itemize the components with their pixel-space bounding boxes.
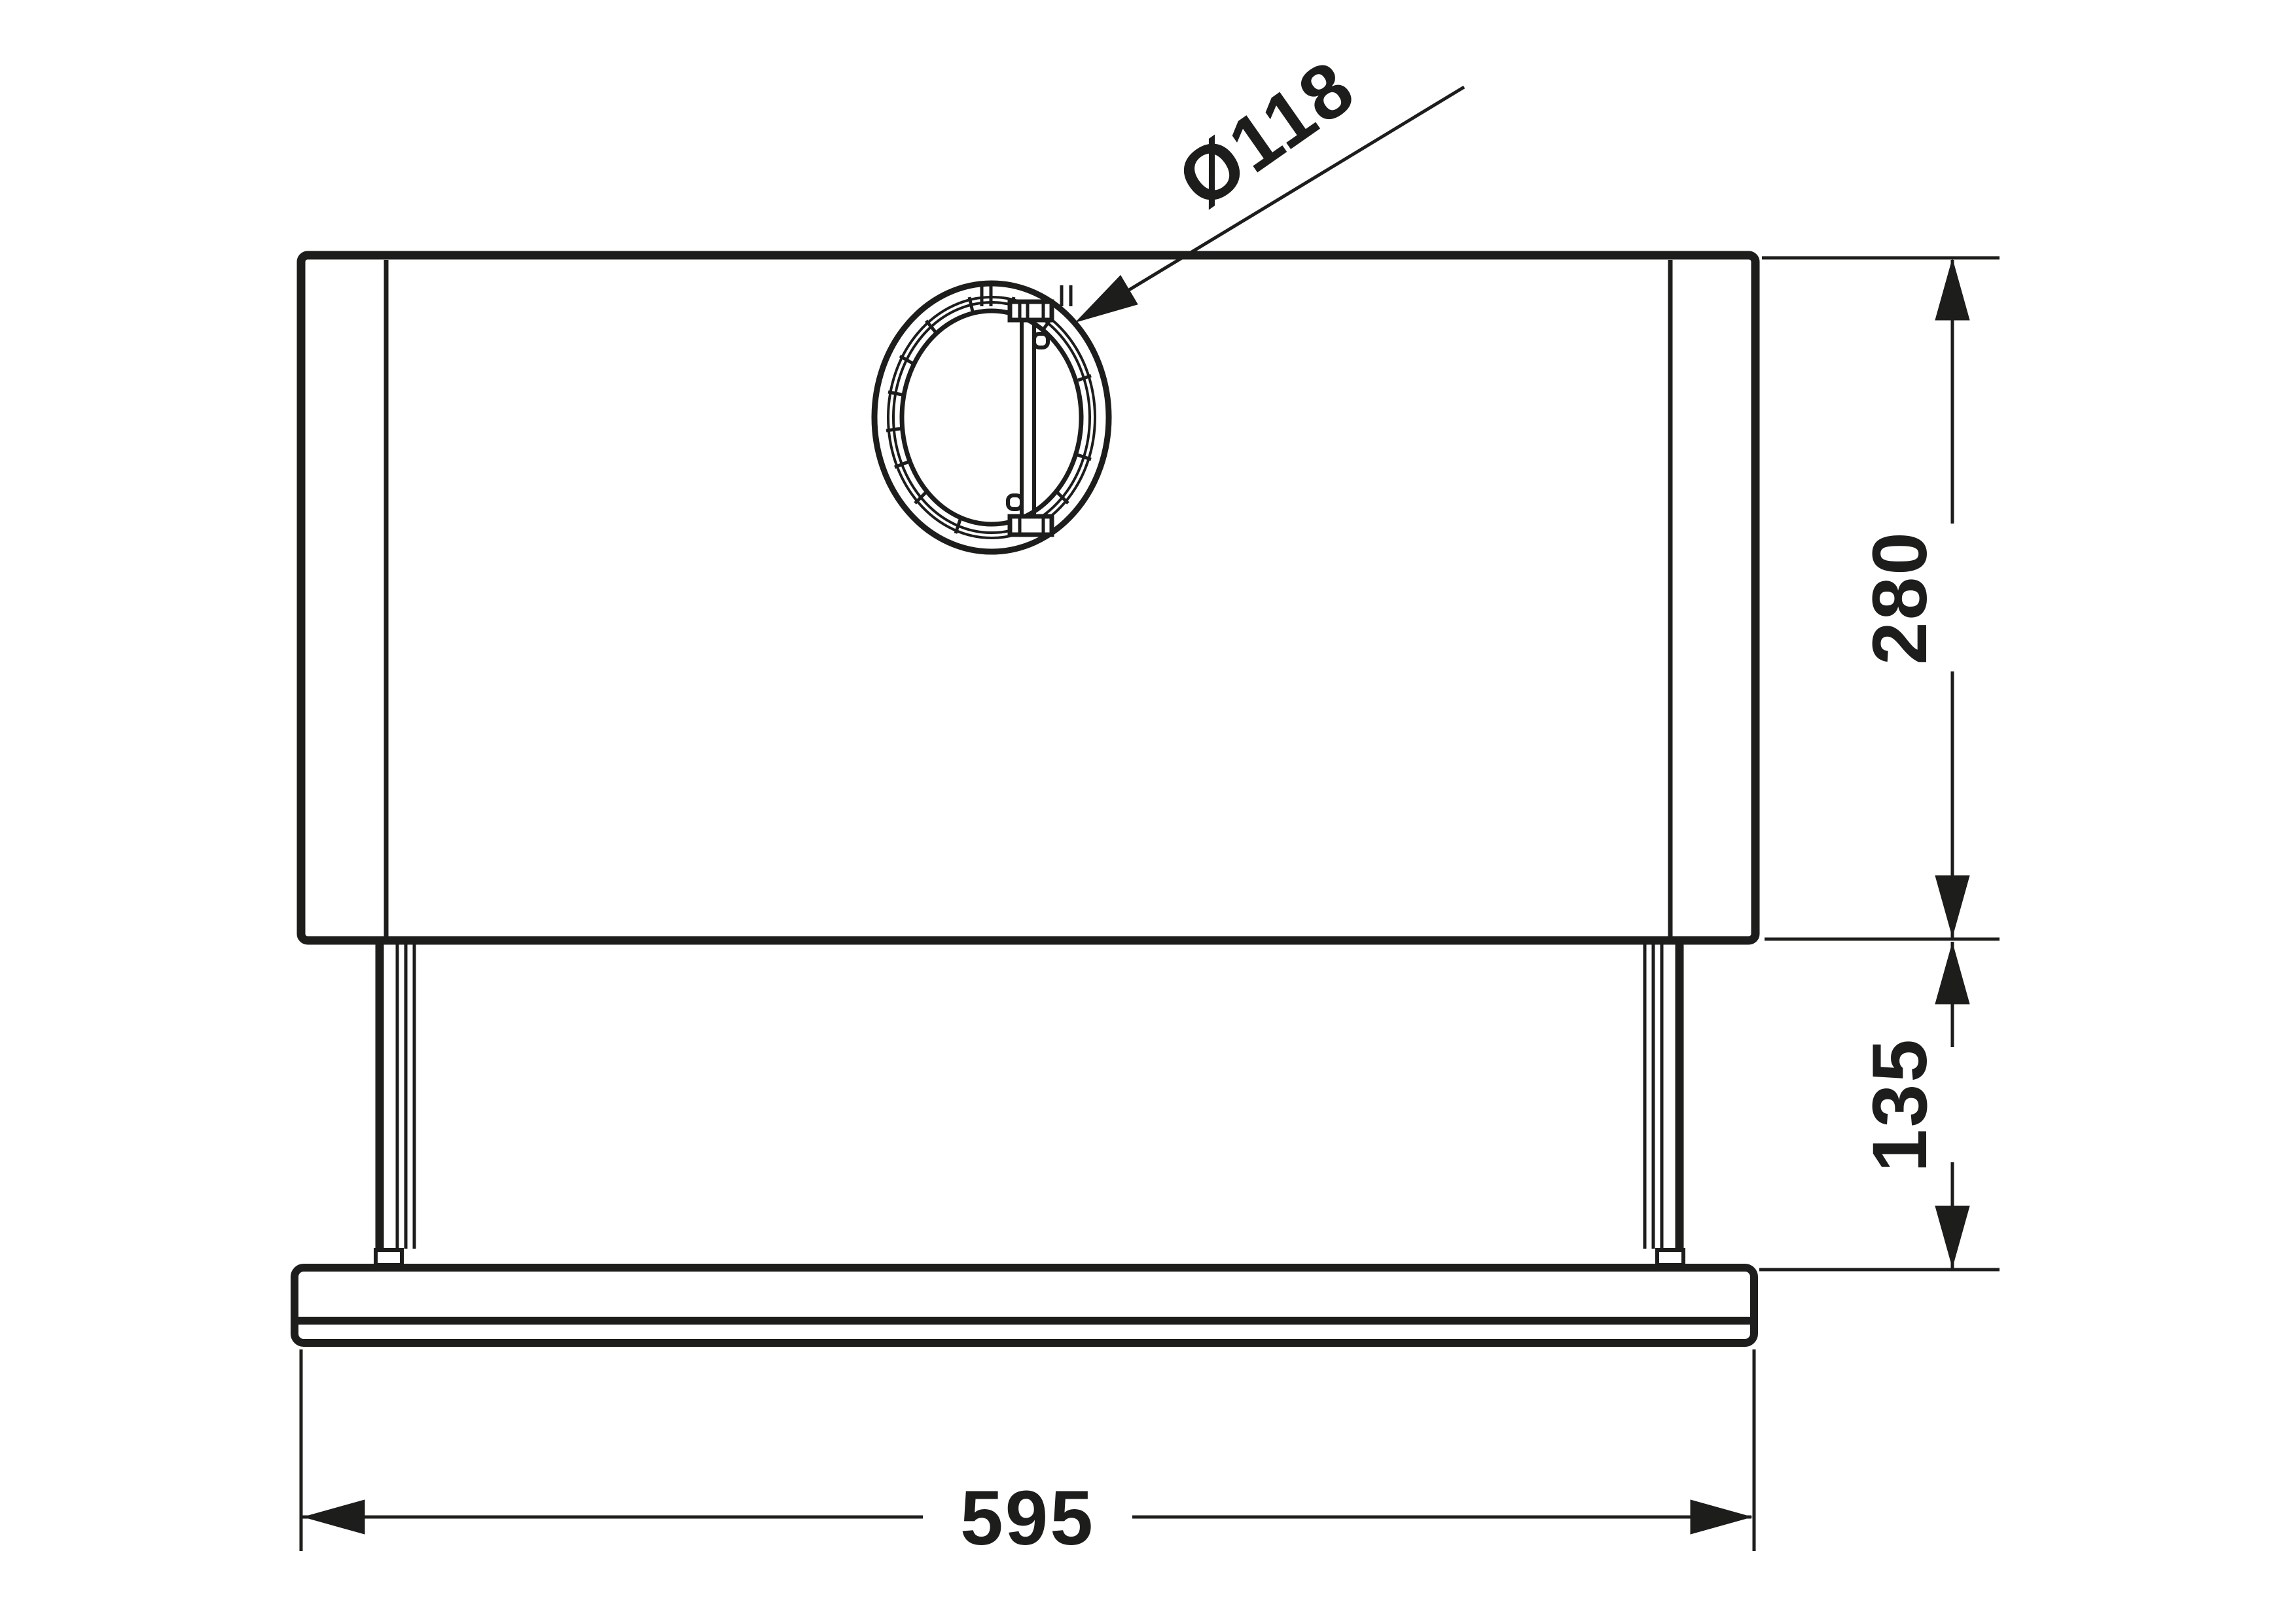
arrowhead-down-135 <box>1935 1206 1969 1267</box>
arrowhead-down-280 <box>1935 876 1969 936</box>
damper-bottom-clamp <box>1010 516 1052 535</box>
duct-outer-ring <box>874 283 1109 552</box>
bottom-visor-panel <box>295 1268 1754 1343</box>
body-height-label: 280 <box>1861 530 1939 665</box>
visor-panel-rect <box>295 1268 1754 1343</box>
arrowhead-up-135 <box>1935 943 1969 1004</box>
overall-width-label: 595 <box>960 1480 1095 1557</box>
duct-spigot-assembly <box>874 283 1109 552</box>
arrowhead-right-595 <box>1691 1500 1751 1534</box>
drawing-canvas <box>0 0 2296 1623</box>
damper-top-clamp <box>1010 302 1052 320</box>
lower-section-height-label: 135 <box>1861 1037 1939 1172</box>
chimney-right-side <box>1645 940 1683 1265</box>
technical-drawing-page: Ø118 280 135 595 <box>0 0 2296 1623</box>
chimney-right-foot <box>1657 1250 1683 1265</box>
damper-pivot-nub-upper <box>1034 334 1048 348</box>
damper-pivot-nub-lower <box>1008 495 1022 509</box>
arrowhead-up-280 <box>1935 259 1969 320</box>
chimney-left-side <box>376 940 414 1265</box>
arrowhead-left-595 <box>304 1500 365 1534</box>
chimney-left-foot <box>376 1250 402 1265</box>
